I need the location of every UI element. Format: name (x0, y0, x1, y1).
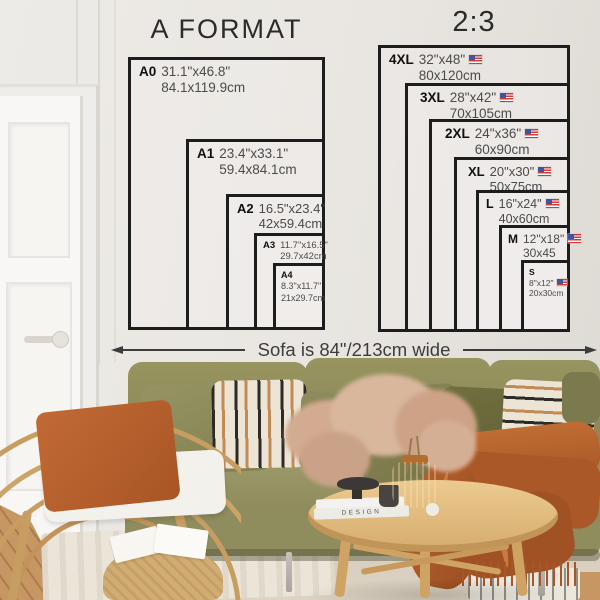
us-flag-icon (538, 167, 551, 176)
olive-pillow (562, 372, 600, 424)
measure-line (123, 349, 245, 351)
size-box-s: S 8"x12" 20x30cm (521, 260, 570, 332)
us-flag-icon (557, 279, 567, 286)
scene: DESIGN A FORMAT 2:3 A0 31.1"x46.8" 84.1x… (0, 0, 600, 600)
door-panel (8, 122, 70, 258)
deco-ball (426, 503, 439, 516)
arrow-left-icon (111, 346, 123, 354)
amber-vase (392, 462, 438, 508)
right-chart-title: 2:3 (378, 6, 570, 39)
wall-trim (114, 0, 116, 362)
sofa-width-annotation: Sofa is 84"/213cm wide (111, 340, 597, 360)
us-flag-icon (546, 199, 559, 208)
measure-line (463, 349, 585, 351)
door-handle-rose (52, 331, 69, 348)
arrow-right-icon (585, 346, 597, 354)
us-flag-icon (525, 129, 538, 138)
orange-pillow (35, 399, 181, 513)
pedestal-bowl (337, 477, 379, 490)
wall-trim (76, 0, 78, 86)
sofa-width-text: Sofa is 84"/213cm wide (258, 339, 451, 361)
us-flag-icon (469, 55, 482, 64)
us-flag-icon (500, 93, 513, 102)
sofa-leg (286, 552, 292, 592)
size-box-a4: A4 8.3"x11.7" 21x29.7cm (273, 263, 325, 330)
us-flag-icon (568, 234, 581, 243)
left-chart-title: A FORMAT (128, 14, 325, 45)
